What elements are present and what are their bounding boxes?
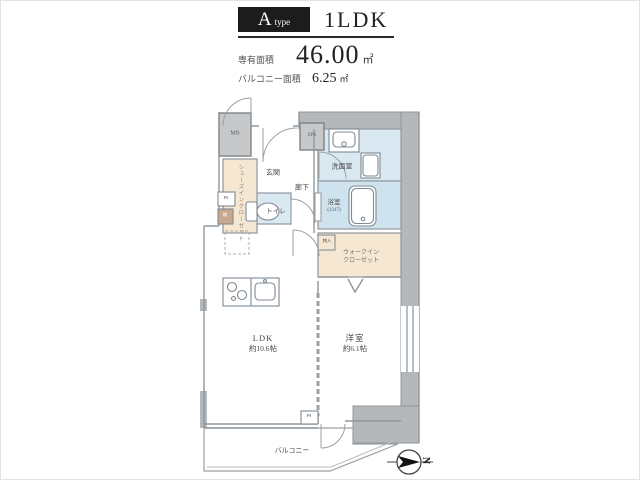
bedroom-label: 洋室 約6.1帖 [343, 333, 367, 355]
balcony-label: バルコニー [275, 447, 310, 456]
bathroom-label: 浴室 (1317) [327, 199, 340, 215]
ldk-label: LDK 約10.6帖 [249, 333, 277, 355]
bedroom-window [401, 306, 419, 372]
washing-machine-icon [361, 153, 380, 178]
entrance-label: 玄関 [266, 169, 280, 178]
compass-north-label: N [420, 457, 431, 464]
ps2-label: PS [307, 414, 312, 419]
walkin-closet-label: ウォークイン クローゼット [343, 249, 379, 265]
sink-icon [255, 280, 275, 300]
mb-label: MB [230, 130, 239, 138]
storage-label: 物入 [323, 239, 332, 244]
shoes-closet-label: シューズインクローゼット [236, 164, 245, 228]
washbasin-icon [329, 129, 359, 152]
floorplan-page: A type 1LDK 専有面積 46.00 ㎡ バルコニー面積 6.25 ㎡ [0, 0, 640, 480]
floorplan-drawing [1, 1, 640, 480]
eps-label: EPS [308, 133, 317, 139]
bathtub-icon [349, 186, 376, 226]
kitchen-counter-icon [223, 278, 279, 306]
hallway-label: 廊下 [295, 184, 309, 193]
shelf-label: 棚 [223, 213, 227, 218]
washroom-label: 洗面室 [332, 163, 353, 172]
toilet-label: トイレ [266, 208, 286, 216]
ps-label: PS [224, 196, 229, 201]
